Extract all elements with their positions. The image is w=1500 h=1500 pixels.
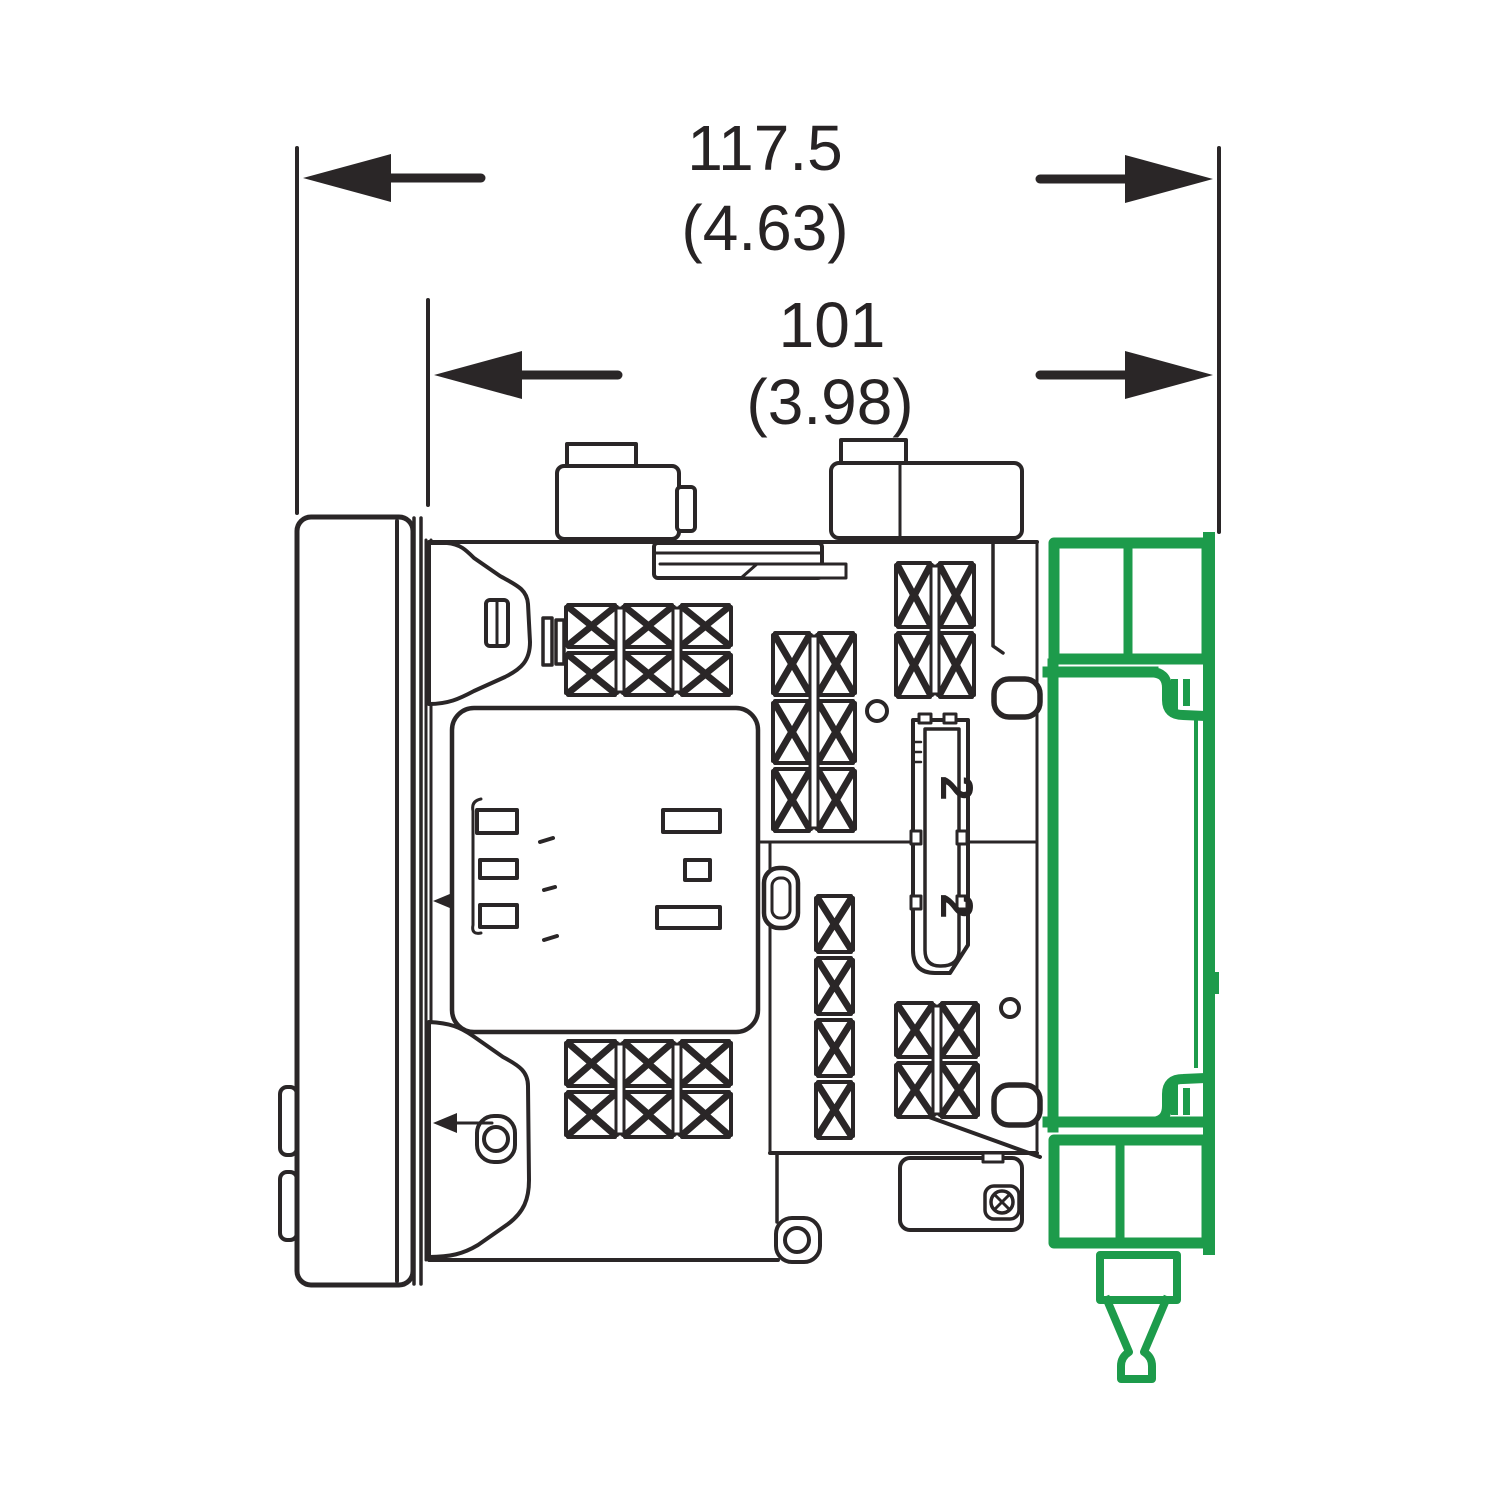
terminal-notch-a — [919, 714, 931, 723]
arrow-left-icon — [434, 351, 522, 399]
release-stem — [1100, 1255, 1177, 1300]
frame-tab-1 — [477, 810, 517, 833]
connector-right-body — [831, 463, 1022, 538]
frame-tab-3 — [480, 905, 517, 927]
vent-grid-mid-column — [773, 633, 855, 831]
rear-slot-upper — [994, 679, 1040, 717]
dim-behind-panel-inch: (3.98) — [746, 366, 913, 438]
dim-overall-mm: 117.5 — [687, 112, 842, 184]
front-bezel — [280, 517, 421, 1285]
dim-behind-panel-mm: 101 — [779, 289, 886, 361]
panel-clip-top — [429, 543, 530, 704]
vent-grid-top-right — [896, 563, 974, 697]
bezel-side-tab-upper — [280, 1087, 297, 1155]
connector-right-cap — [841, 440, 906, 464]
arrow-right-icon — [1125, 155, 1213, 203]
vent-grid-bottom-left — [566, 1041, 731, 1137]
terminal-inner — [925, 729, 959, 966]
release-tab — [1107, 1300, 1166, 1379]
vent-separator-bar — [673, 1044, 681, 1134]
arrow-left-icon — [303, 154, 391, 202]
terminal-rail-mark-3 — [911, 896, 921, 909]
device-side-view-diagram: 117.5 (4.63) 101 (3.98) — [0, 0, 1500, 1500]
terminal-label-upper: 2 — [931, 775, 982, 800]
rail-clip-top-pin-b — [1183, 679, 1190, 706]
slide-cover-latch — [741, 564, 846, 578]
vent-grid-single-column — [816, 896, 853, 1138]
terminal-rail-mark-1 — [911, 831, 921, 844]
adapter-bottom-section — [1054, 1140, 1207, 1243]
terminal-rail-mark-2 — [957, 831, 967, 844]
vent-separator-bar — [933, 1006, 941, 1114]
pcb-hole-upper — [867, 701, 887, 721]
dim-overall-inch: (4.63) — [681, 192, 848, 264]
pcb-hole-lower — [1001, 999, 1019, 1017]
rear-slot-lower — [994, 1085, 1040, 1125]
dimension-drawing-canvas: 117.5 (4.63) 101 (3.98) — [0, 0, 1500, 1500]
rail-clip-bottom-pin-a — [1171, 1084, 1178, 1115]
rail-clip-bottom-pin-b — [1183, 1088, 1190, 1115]
vent-grid-top-left — [566, 605, 731, 695]
din-rail-adapter — [1048, 538, 1219, 1379]
frame-pill-inner — [772, 878, 790, 918]
vent-separator-bar — [673, 608, 681, 692]
housing-top-right-step — [993, 542, 1003, 653]
dimension-annotations: 117.5 (4.63) 101 (3.98) — [297, 112, 1219, 532]
top-connectors — [557, 440, 1022, 578]
arrow-right-icon — [1125, 351, 1213, 399]
frame-slot-upper — [663, 810, 720, 832]
frame-tab-2 — [480, 860, 517, 878]
bezel-side-tab-lower — [280, 1172, 297, 1240]
terminal-notch-b — [944, 714, 956, 723]
vent-separator-bar — [616, 1044, 624, 1134]
frame-slot-lower — [657, 907, 720, 928]
terminal-label-lower: 2 — [931, 893, 982, 918]
clip-bar-b — [556, 620, 564, 664]
rail-clip-top-pin-a — [1171, 679, 1178, 710]
connector-left-step — [677, 487, 695, 531]
connector-left-body — [557, 466, 679, 539]
connector-left-cap — [567, 444, 636, 467]
clip-bar-a — [543, 618, 552, 665]
vent-grid-bottom-mid — [896, 1003, 978, 1117]
vent-separator-bar — [931, 566, 939, 694]
mounting-lug — [776, 1218, 820, 1262]
frame-slot-small — [685, 860, 710, 880]
vent-separator-bar — [810, 636, 818, 828]
vent-separator-bar — [616, 608, 624, 692]
bottom-box-notch — [983, 1153, 1003, 1162]
adapter-side-nub — [1210, 972, 1219, 994]
